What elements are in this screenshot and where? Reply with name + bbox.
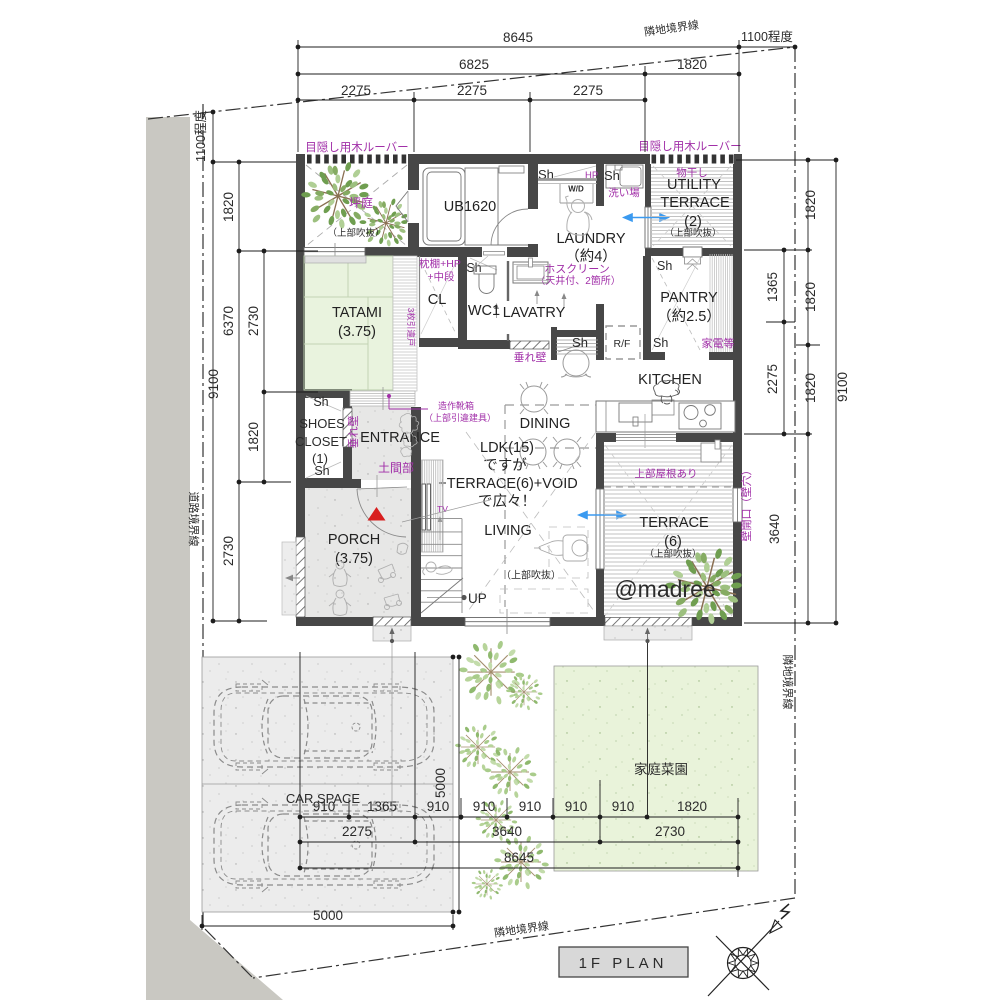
svg-text:PORCH: PORCH [328,532,380,548]
svg-text:W/D: W/D [568,185,584,194]
svg-text:（上部吹抜）: （上部吹抜） [644,548,701,560]
svg-text:Sh: Sh [653,336,668,350]
svg-text:910: 910 [313,799,336,814]
svg-text:垂れ壁: 垂れ壁 [346,416,360,449]
svg-text:910: 910 [473,799,496,814]
svg-text:坪庭: 坪庭 [349,195,373,210]
svg-text:R/F: R/F [614,338,631,350]
svg-text:3640: 3640 [767,514,782,544]
svg-text:DINING: DINING [520,416,571,432]
svg-text:1F PLAN: 1F PLAN [579,955,668,972]
svg-text:(6): (6) [664,534,682,550]
svg-text:1820: 1820 [677,57,707,72]
svg-text:5000: 5000 [313,908,343,923]
svg-text:壁開口（壁穴）: 壁開口（壁穴） [739,465,753,542]
svg-text:（約4）: （約4） [565,248,617,265]
svg-text:2730: 2730 [655,824,685,839]
svg-text:Sh: Sh [604,168,620,183]
svg-text:8645: 8645 [504,850,534,865]
svg-text:TERRACE: TERRACE [639,515,709,531]
svg-text:TERRACE: TERRACE [660,195,730,211]
svg-text:2275: 2275 [573,83,603,98]
svg-text:CL: CL [428,292,447,308]
svg-text:Sh: Sh [657,259,672,273]
svg-text:5000: 5000 [433,768,448,798]
svg-text:910: 910 [565,799,588,814]
svg-text:家電等: 家電等 [702,336,735,350]
svg-text:（上部吹抜）: （上部吹抜） [327,227,384,239]
svg-text:LAUNDRY: LAUNDRY [556,231,625,247]
svg-text:ENTRANCE: ENTRANCE [360,430,440,446]
svg-text:1100程度: 1100程度 [193,110,208,162]
svg-text:LIVING: LIVING [484,523,532,539]
svg-text:1820: 1820 [803,190,818,220]
svg-text:（上部引違建具）: （上部引違建具） [424,412,496,423]
svg-text:土間部: 土間部 [378,460,414,475]
svg-text:2275: 2275 [457,83,487,98]
svg-text:枕棚+HP: 枕棚+HP [419,257,461,270]
svg-text:UTILITY: UTILITY [667,177,721,193]
svg-text:LAVATRY: LAVATRY [503,305,566,321]
svg-text:910: 910 [612,799,635,814]
svg-text:目隠し用木ルーバー: 目隠し用木ルーバー [638,140,741,153]
svg-text:洗い場: 洗い場 [608,186,640,199]
svg-text:1365: 1365 [765,272,780,302]
svg-text:1100程度: 1100程度 [741,29,793,44]
svg-text:（上部吹抜）: （上部吹抜） [664,227,721,239]
svg-text:1820: 1820 [246,422,261,452]
svg-text:Sh: Sh [572,335,588,350]
svg-text:+TERRACE(6)+VOID: +TERRACE(6)+VOID [438,476,577,492]
svg-text:3640: 3640 [492,824,522,839]
svg-text:(3.75): (3.75) [338,324,376,340]
svg-text:2275: 2275 [342,824,372,839]
svg-text:隣地境界線: 隣地境界線 [781,655,795,710]
svg-text:造作靴箱: 造作靴箱 [438,400,474,411]
svg-text:で広々！: で広々！ [478,493,536,510]
svg-text:（上部吹抜）: （上部吹抜） [501,569,561,582]
svg-text:910: 910 [519,799,542,814]
svg-text:9100: 9100 [835,372,850,402]
svg-text:1820: 1820 [221,192,236,222]
svg-text:6370: 6370 [221,306,236,336]
svg-text:目隠し用木ルーバー: 目隠し用木ルーバー [305,141,408,154]
svg-text:垂れ壁: 垂れ壁 [514,350,547,364]
svg-text:WC1: WC1 [468,303,500,319]
svg-text:1820: 1820 [803,373,818,403]
svg-text:CLOSET: CLOSET [295,434,347,449]
svg-text:HP: HP [585,170,598,181]
svg-text:(3.75): (3.75) [335,551,373,567]
svg-text:Sh: Sh [314,464,329,478]
svg-text:1365: 1365 [367,799,397,814]
svg-text:（約2.5）: （約2.5） [657,308,721,325]
svg-text:UB1620: UB1620 [444,199,496,215]
svg-text:2275: 2275 [341,83,371,98]
svg-text:TATAMI: TATAMI [332,305,382,321]
svg-text:家庭菜園: 家庭菜園 [634,761,688,777]
svg-text:2275: 2275 [765,364,780,394]
svg-text:LDK(15): LDK(15) [480,440,534,456]
svg-text:道路境界線: 道路境界線 [187,492,201,547]
svg-text:2730: 2730 [246,306,261,336]
svg-text:1820: 1820 [803,282,818,312]
svg-text:上部屋根あり: 上部屋根あり [635,467,698,480]
svg-text:910: 910 [427,799,450,814]
svg-text:@madree: @madree [614,576,715,602]
svg-text:Sh: Sh [313,395,328,409]
svg-text:6825: 6825 [459,57,489,72]
svg-text:PANTRY: PANTRY [660,290,718,306]
svg-text:+中段: +中段 [427,270,455,283]
svg-text:SHOES: SHOES [299,416,345,431]
svg-text:9100: 9100 [206,369,221,399]
svg-text:ですが: ですが [483,457,527,474]
svg-text:3枚引違戸: 3枚引違戸 [406,308,416,347]
svg-text:1820: 1820 [677,799,707,814]
svg-text:2730: 2730 [221,536,236,566]
svg-text:8645: 8645 [503,30,533,45]
svg-text:ホスクリーン: ホスクリーン [544,263,609,276]
svg-text:UP: UP [468,591,487,606]
